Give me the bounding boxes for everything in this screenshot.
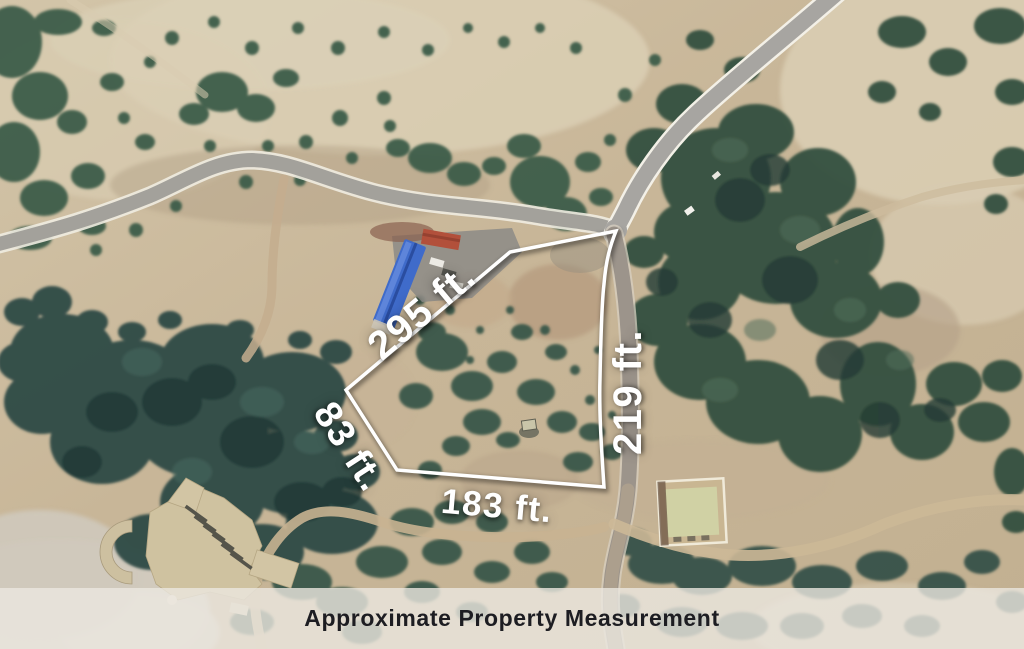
property-map-figure: 295 ft. 219 ft. 83 ft. 183 ft. Approxima… — [0, 0, 1024, 649]
small-shed — [519, 419, 539, 438]
measurement-label-right-edge: 219 ft. — [608, 329, 648, 455]
caption-text: Approximate Property Measurement — [304, 605, 719, 632]
satellite-imagery — [0, 0, 1024, 649]
measurement-label-bottom-edge: 183 ft. — [440, 484, 554, 529]
caption-bar: Approximate Property Measurement — [0, 588, 1024, 649]
fenced-enclosure — [657, 478, 726, 545]
